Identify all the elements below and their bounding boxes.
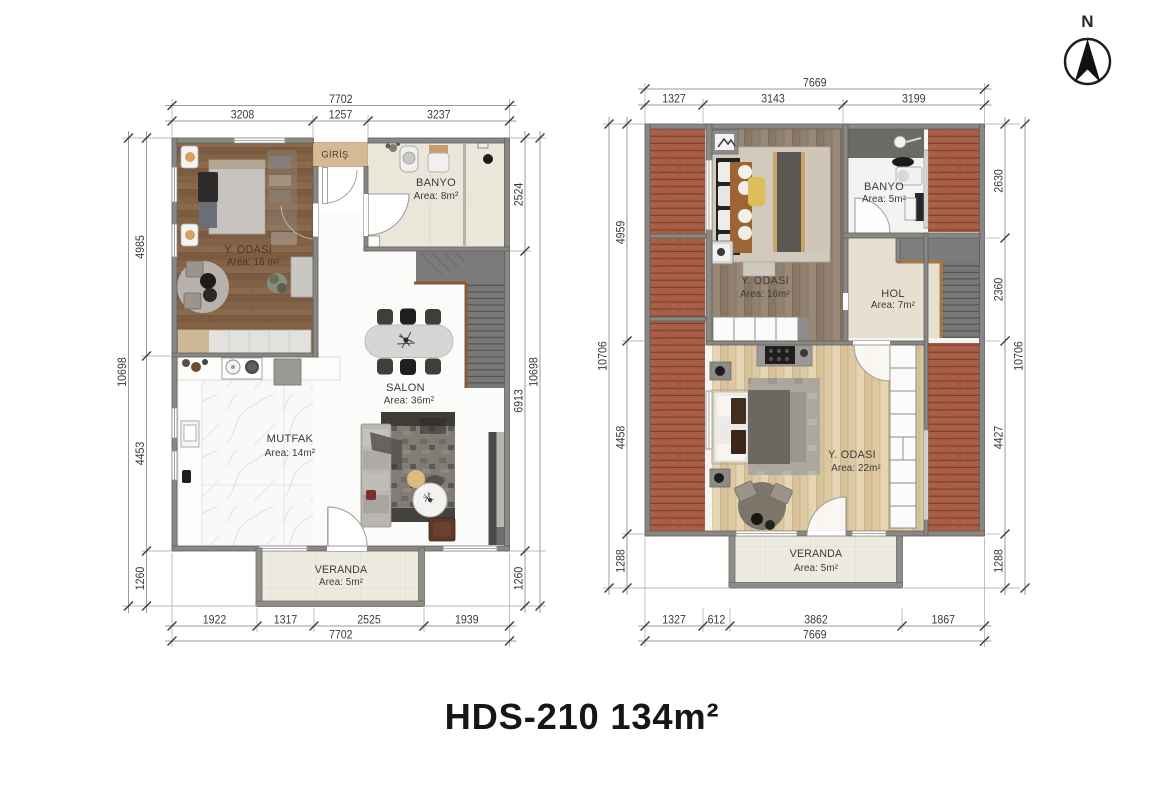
svg-text:7702: 7702 (329, 92, 353, 106)
svg-text:7702: 7702 (329, 628, 353, 642)
svg-text:2525: 2525 (357, 613, 381, 627)
svg-text:GİRİŞ: GİRİŞ (321, 150, 348, 160)
svg-text:SALON: SALON (386, 382, 425, 394)
svg-text:Area: 8m²: Area: 8m² (414, 191, 459, 202)
svg-text:4427: 4427 (992, 425, 1006, 449)
svg-text:1922: 1922 (203, 613, 227, 627)
svg-text:1867: 1867 (931, 613, 955, 627)
svg-text:1327: 1327 (662, 92, 686, 106)
svg-text:1260: 1260 (512, 566, 526, 590)
svg-text:BANYO: BANYO (864, 181, 904, 193)
svg-text:7669: 7669 (803, 628, 827, 642)
svg-text:Area: 5m²: Area: 5m² (319, 577, 364, 588)
svg-text:HDS-210 134m²: HDS-210 134m² (445, 696, 720, 737)
svg-text:Y. ODASI: Y. ODASI (828, 449, 876, 461)
svg-text:Area: 5m²: Area: 5m² (794, 563, 839, 574)
svg-text:1288: 1288 (992, 549, 1006, 573)
svg-text:Area: 14m²: Area: 14m² (265, 448, 316, 459)
svg-text:Area: 16m²: Area: 16m² (740, 289, 790, 300)
svg-text:Y. ODASI: Y. ODASI (741, 275, 789, 287)
svg-text:Y. ODASI: Y. ODASI (224, 244, 272, 256)
svg-text:10698: 10698 (115, 357, 129, 387)
svg-text:4458: 4458 (614, 425, 628, 449)
svg-text:1939: 1939 (455, 613, 479, 627)
svg-text:1260: 1260 (133, 566, 147, 590)
svg-text:BANYO: BANYO (416, 177, 456, 189)
svg-text:VERANDA: VERANDA (790, 548, 843, 560)
svg-text:1257: 1257 (329, 108, 353, 122)
svg-text:Area: 5m²: Area: 5m² (862, 194, 907, 205)
svg-text:3208: 3208 (231, 108, 255, 122)
svg-text:7669: 7669 (803, 76, 827, 90)
svg-text:3237: 3237 (427, 108, 451, 122)
svg-text:N: N (1081, 12, 1094, 31)
svg-text:1288: 1288 (614, 549, 628, 573)
svg-text:4959: 4959 (614, 220, 628, 244)
svg-text:612: 612 (708, 613, 726, 627)
svg-text:1327: 1327 (662, 613, 686, 627)
svg-text:3199: 3199 (902, 92, 926, 106)
svg-text:6913: 6913 (512, 389, 526, 413)
svg-text:4453: 4453 (133, 441, 147, 465)
svg-text:10706: 10706 (596, 341, 610, 371)
svg-text:MUTFAK: MUTFAK (267, 433, 314, 445)
svg-text:2524: 2524 (512, 182, 526, 206)
svg-text:Area: 36m²: Area: 36m² (384, 396, 435, 407)
svg-text:1317: 1317 (274, 613, 298, 627)
svg-text:10706: 10706 (1012, 341, 1026, 371)
svg-text:Area: 22m²: Area: 22m² (831, 463, 881, 474)
svg-text:4985: 4985 (133, 235, 147, 259)
svg-text:Area: 7m²: Area: 7m² (871, 300, 916, 311)
svg-text:VERANDA: VERANDA (315, 564, 368, 576)
svg-text:2360: 2360 (992, 277, 1006, 301)
svg-text:3143: 3143 (761, 92, 785, 106)
svg-text:10698: 10698 (527, 357, 541, 387)
svg-text:Area: 16 m²: Area: 16 m² (227, 257, 280, 268)
svg-text:2630: 2630 (992, 169, 1006, 193)
svg-text:HOL: HOL (881, 288, 905, 300)
svg-text:3862: 3862 (804, 613, 828, 627)
